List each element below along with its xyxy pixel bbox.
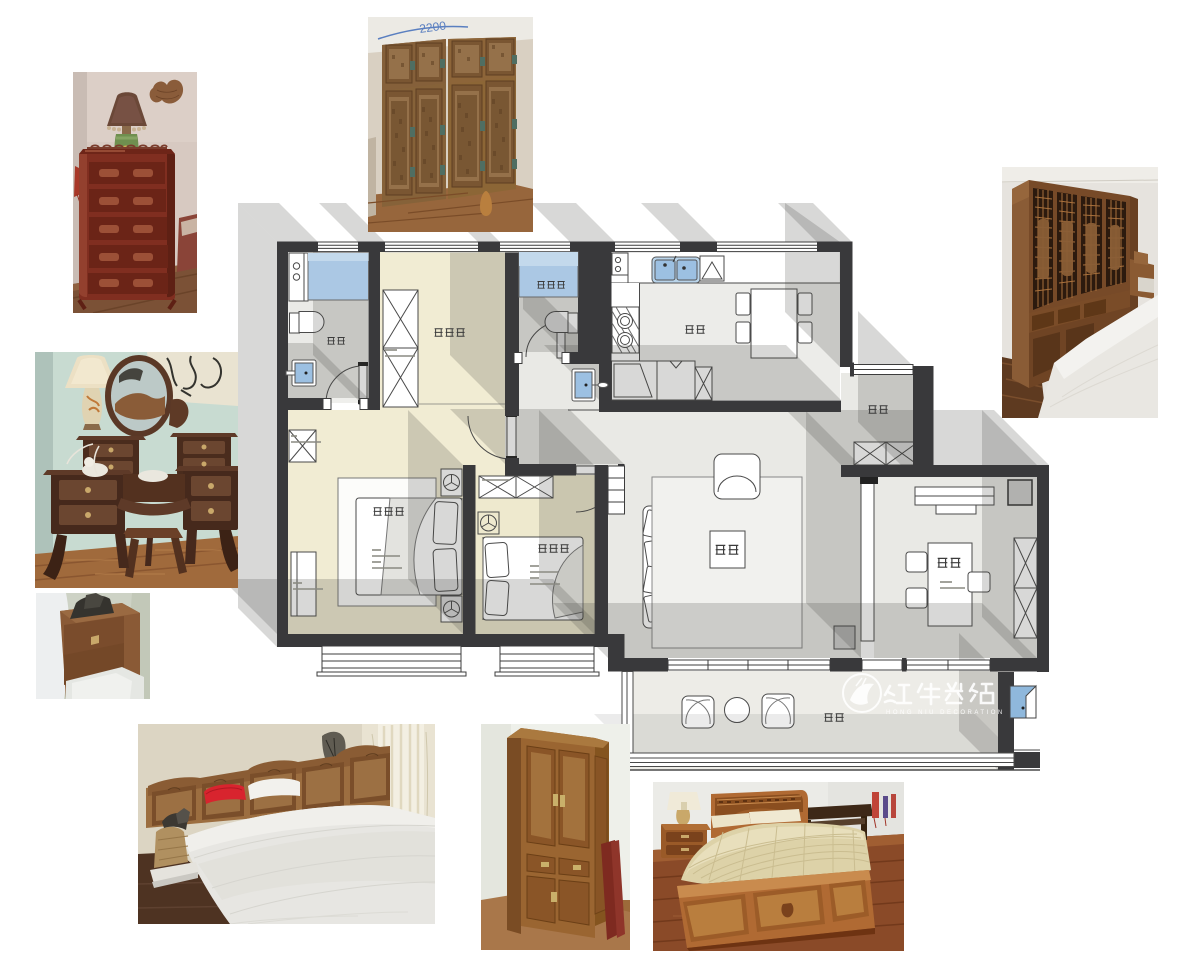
svg-text:HONG NIU DECORATION: HONG NIU DECORATION [886, 710, 1005, 716]
